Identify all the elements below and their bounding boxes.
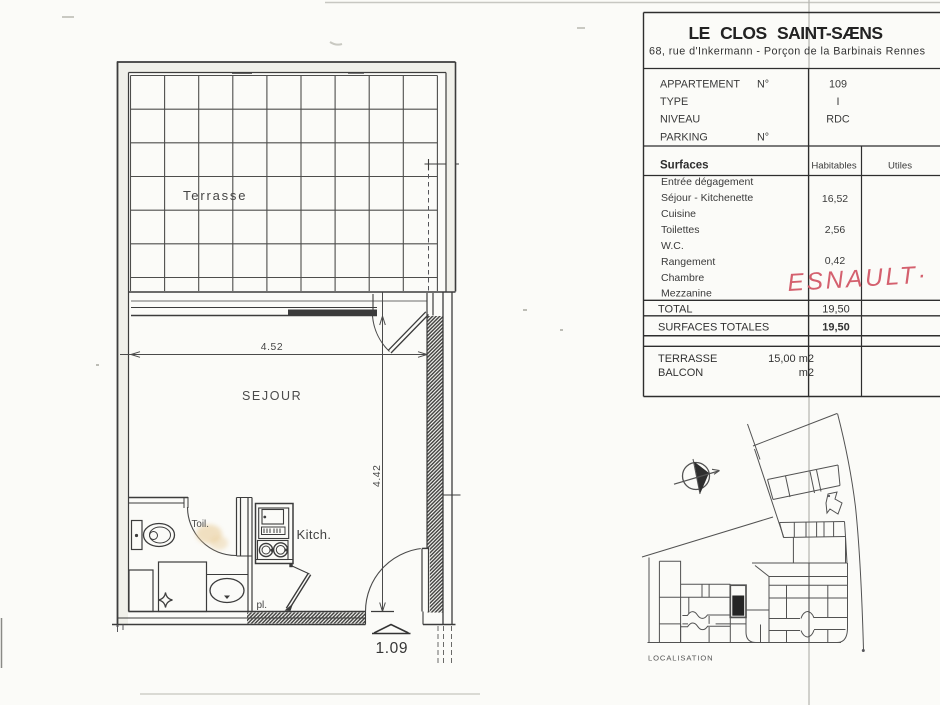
svg-text:PARKING: PARKING (660, 132, 708, 144)
svg-text:15,00 m2: 15,00 m2 (768, 353, 814, 365)
svg-text:4.42: 4.42 (372, 465, 383, 487)
svg-text:109: 109 (829, 79, 847, 91)
svg-text:19,50: 19,50 (822, 322, 850, 334)
svg-text:Habitables: Habitables (811, 161, 857, 172)
svg-text:W.C.: W.C. (661, 240, 684, 252)
svg-text:68, rue d'Inkermann - Porçon d: 68, rue d'Inkermann - Porçon de la Barbi… (649, 46, 926, 58)
svg-text:Mezzanine: Mezzanine (661, 288, 712, 300)
svg-text:Toilettes: Toilettes (661, 224, 700, 236)
svg-text:2,56: 2,56 (825, 224, 846, 236)
svg-text:Séjour - Kitchenette: Séjour - Kitchenette (661, 192, 753, 204)
svg-text:I: I (837, 96, 840, 108)
svg-text:APPARTEMENT: APPARTEMENT (660, 79, 740, 91)
svg-text:Toil.: Toil. (192, 519, 209, 530)
svg-text:NIVEAU: NIVEAU (660, 114, 700, 126)
svg-text:4.52: 4.52 (261, 342, 283, 353)
svg-text:TERRASSE: TERRASSE (658, 353, 717, 365)
svg-text:Rangement: Rangement (661, 256, 715, 268)
svg-text:Kitch.: Kitch. (297, 527, 332, 542)
svg-text:RDC: RDC (826, 114, 850, 126)
svg-text:N°: N° (757, 79, 769, 91)
svg-text:1.09: 1.09 (376, 640, 409, 657)
svg-text:LE CLOS SAINT-SÆNS: LE CLOS SAINT-SÆNS (689, 23, 884, 43)
svg-text:LOCALISATION: LOCALISATION (648, 654, 714, 663)
svg-text:SEJOUR: SEJOUR (242, 389, 302, 403)
svg-text:TYPE: TYPE (660, 96, 688, 108)
svg-text:BALCON: BALCON (658, 367, 703, 379)
svg-text:SURFACES TOTALES: SURFACES TOTALES (658, 322, 769, 334)
svg-text:Utiles: Utiles (888, 161, 912, 172)
svg-text:Chambre: Chambre (661, 272, 704, 284)
svg-text:Entrée dégagement: Entrée dégagement (661, 176, 753, 188)
svg-text:0,42: 0,42 (825, 255, 846, 267)
svg-text:m2: m2 (799, 367, 814, 379)
svg-text:Terrasse: Terrasse (183, 188, 247, 203)
svg-text:N°: N° (757, 132, 769, 144)
svg-text:16,52: 16,52 (822, 193, 848, 205)
svg-text:TOTAL: TOTAL (658, 304, 692, 316)
svg-text:19,50: 19,50 (822, 304, 850, 316)
svg-text:Cuisine: Cuisine (661, 208, 696, 220)
svg-text:pl.: pl. (257, 600, 268, 611)
svg-text:Surfaces: Surfaces (660, 160, 709, 172)
